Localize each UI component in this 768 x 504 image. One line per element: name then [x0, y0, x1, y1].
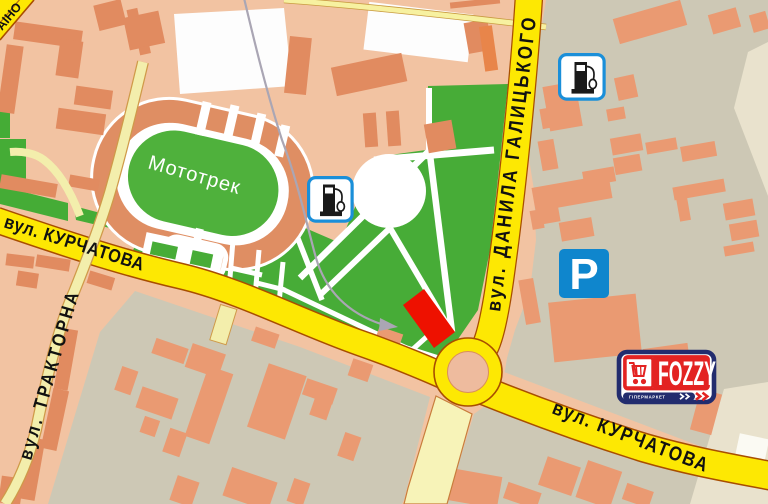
- svg-text:P: P: [569, 250, 598, 299]
- svg-text:ГІПЕРМАРКЕТ: ГІПЕРМАРКЕТ: [629, 395, 666, 400]
- svg-text:FOZZY: FOZZY: [658, 354, 716, 393]
